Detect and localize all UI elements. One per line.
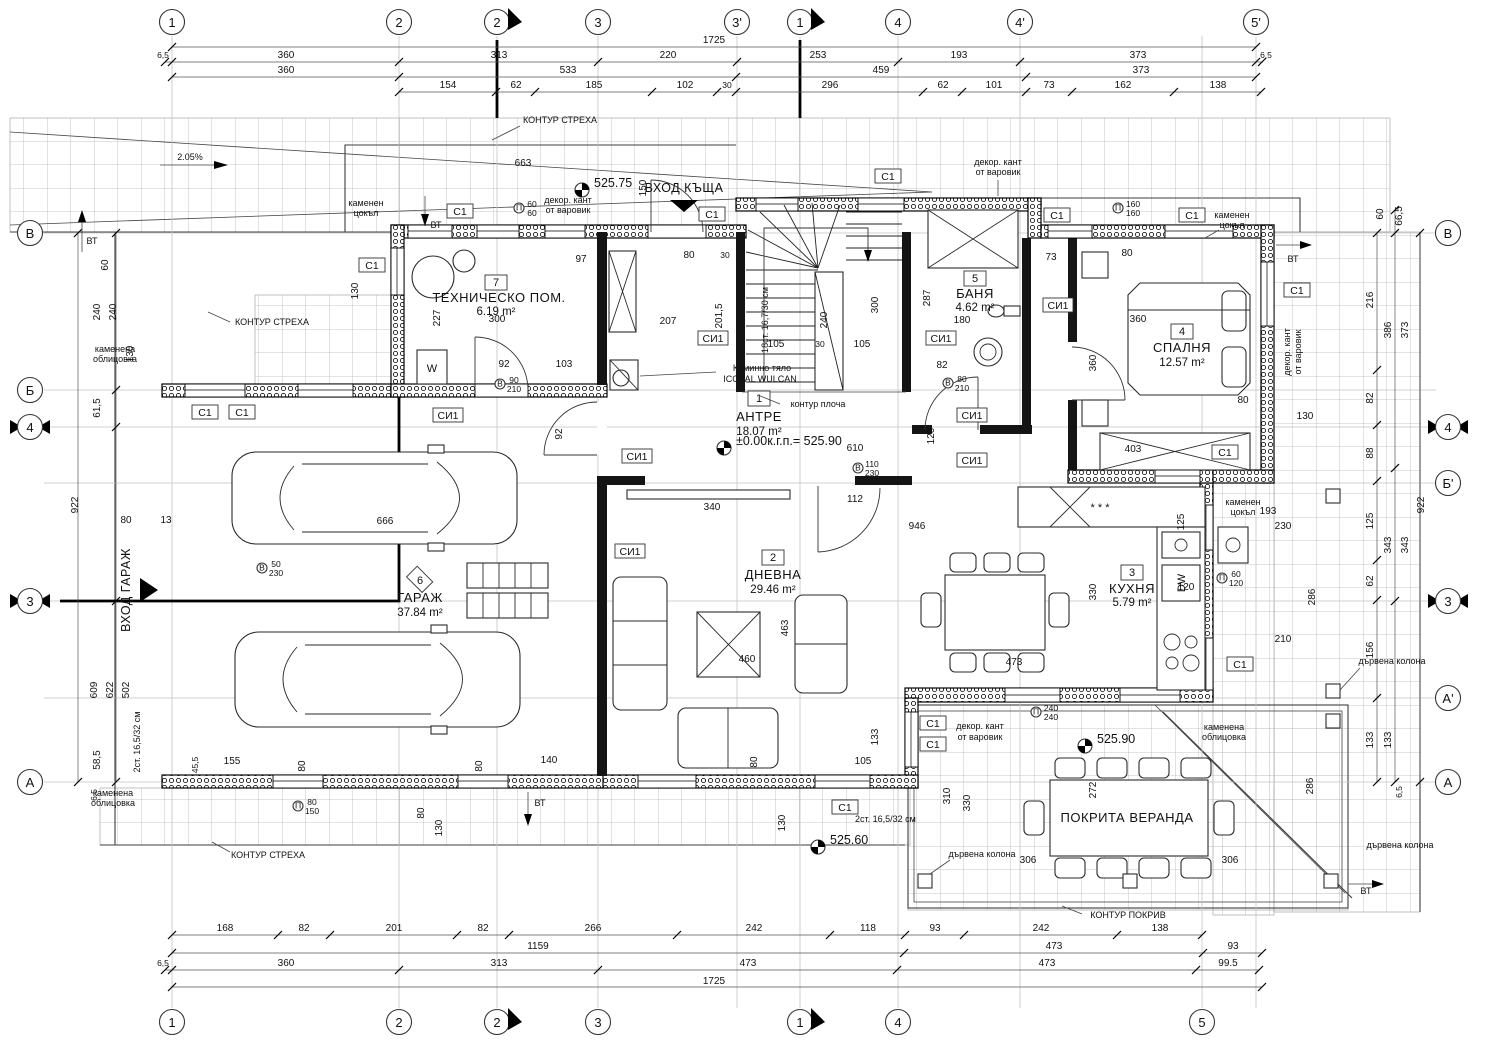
vent-label: ВТ bbox=[1361, 886, 1372, 896]
grid-bubble-right: А bbox=[1436, 770, 1461, 795]
chimney-label: ICOPAL WULCAN bbox=[723, 374, 797, 384]
grid-bubble-right: 3 bbox=[1428, 589, 1468, 614]
door-tag-text: СИ1 bbox=[962, 455, 983, 467]
room-number: 5 bbox=[972, 273, 978, 285]
room-area: 6.19 m² bbox=[477, 306, 516, 318]
wooden-column-label: дървена колона bbox=[948, 849, 1015, 859]
marker-letter: П bbox=[1115, 203, 1121, 213]
dim-label: 125 bbox=[1365, 512, 1376, 529]
dim-label: 622 bbox=[105, 681, 116, 698]
dim-label: 99.5 bbox=[1218, 958, 1238, 969]
dim-label: 80 bbox=[1237, 395, 1249, 406]
dim-label: 227 bbox=[432, 309, 443, 326]
shower bbox=[928, 210, 1018, 268]
room-number: 1 bbox=[756, 393, 762, 405]
dim-label: 330 bbox=[1088, 583, 1099, 600]
door-tag: СИ1 bbox=[433, 408, 463, 422]
dim-label: 313 bbox=[491, 958, 508, 969]
window bbox=[858, 198, 904, 211]
dim-label: 120 bbox=[926, 427, 937, 444]
roof-contour-label: КОНТУР ПОКРИВ bbox=[1090, 910, 1166, 920]
marker-letter: В bbox=[259, 563, 265, 573]
vent-label: ВТ bbox=[431, 220, 442, 230]
dim-label: 80 bbox=[1121, 248, 1133, 259]
window-tag-text: С1 bbox=[453, 206, 467, 218]
window-tag: С1 bbox=[699, 207, 725, 221]
room-area: 12.57 m² bbox=[1159, 357, 1205, 369]
tv-console bbox=[627, 490, 790, 499]
dim-label: 97 bbox=[575, 254, 587, 265]
grid-label: 1 bbox=[796, 1015, 803, 1030]
window bbox=[638, 775, 696, 788]
dim-label: 62 bbox=[510, 80, 522, 91]
dim-label: 80 bbox=[120, 515, 132, 526]
room-name-veranda: ПОКРИТА ВЕРАНДА bbox=[1060, 810, 1193, 825]
dim-label: 386 bbox=[1383, 321, 1394, 338]
bathroom-sink bbox=[974, 338, 1002, 366]
dim-label: 473 bbox=[740, 958, 757, 969]
dim-label: 66,5 bbox=[1394, 206, 1405, 226]
dim-label: 296 bbox=[822, 80, 839, 91]
grid-bubble-top: 5' bbox=[1244, 10, 1269, 35]
grid-label: 5' bbox=[1251, 15, 1261, 30]
dim-label: 80 bbox=[749, 756, 760, 768]
grid-label: 2 bbox=[493, 15, 500, 30]
window-tag: С1 bbox=[920, 737, 946, 751]
room-name: ТЕХНИЧЕСКО ПОМ. bbox=[432, 290, 565, 305]
grid-bubble-right: Б' bbox=[1436, 471, 1461, 496]
dim-label: 272 bbox=[1088, 781, 1099, 798]
door-tag: СИ1 bbox=[1043, 298, 1073, 312]
eave-contour-label: КОНТУР СТРЕХА bbox=[235, 317, 309, 327]
dim-label: 306 bbox=[1222, 855, 1239, 866]
dim-label: 118 bbox=[860, 923, 876, 934]
window bbox=[1261, 262, 1274, 326]
window-tag: С1 bbox=[1227, 657, 1253, 671]
window-tag-text: С1 bbox=[198, 407, 212, 419]
dim-label: 82 bbox=[1365, 392, 1376, 404]
door-gap bbox=[597, 402, 607, 455]
grid-bubble-right: В bbox=[1436, 221, 1461, 246]
dim-label: 220 bbox=[660, 50, 677, 61]
dim-label: 82 bbox=[477, 923, 489, 934]
room-number: 2 bbox=[770, 552, 776, 564]
grid-bubble-left: В bbox=[18, 221, 43, 246]
window bbox=[1005, 688, 1060, 702]
stone-plinth-label: каменен bbox=[1225, 497, 1260, 507]
slab-contour-note: контур плоча bbox=[791, 399, 846, 409]
dim-label: 306 bbox=[1020, 855, 1037, 866]
dim-label: 133 bbox=[870, 728, 881, 745]
dim-label: 103 bbox=[556, 359, 573, 370]
dim-label: 207 bbox=[660, 316, 677, 327]
dim-label: 185 bbox=[586, 80, 603, 91]
door-tag: СИ1 bbox=[926, 331, 956, 345]
stone-cladding-label: облицовка bbox=[93, 354, 137, 364]
bottom-dimension-labels: 168 82 201 82 266 242 118 93 242 138 115… bbox=[157, 923, 1239, 987]
grid-bubble-left: Б bbox=[18, 378, 43, 403]
dim-label: 101 bbox=[986, 80, 1003, 91]
dim-label: 138 bbox=[1152, 923, 1169, 934]
window-tag-text: С1 bbox=[1233, 659, 1247, 671]
door-tag: СИ1 bbox=[957, 453, 987, 467]
dim-label: 6,5 bbox=[157, 958, 169, 968]
dim-label: 30 bbox=[722, 80, 732, 90]
window bbox=[1155, 470, 1200, 483]
grid-label: 2 bbox=[395, 15, 402, 30]
coffee-table bbox=[697, 612, 760, 677]
window-tag-text: С1 bbox=[365, 260, 379, 272]
limestone-trim-label: декор. кант bbox=[544, 195, 592, 205]
level-symbol bbox=[717, 441, 731, 455]
room-number: 3 bbox=[1129, 567, 1135, 579]
dim-label: 230 bbox=[1275, 521, 1292, 532]
room-name: КУХНЯ bbox=[1109, 581, 1155, 596]
grid-label: 3 bbox=[1444, 594, 1451, 609]
dim-label: 130 bbox=[434, 819, 445, 836]
vent-label: ВТ bbox=[535, 798, 546, 808]
dim-label: 300 bbox=[870, 296, 881, 313]
grid-bubble-left: 4 bbox=[10, 415, 50, 440]
dim-label: 201,5 bbox=[714, 303, 725, 328]
door-tag-text: СИ1 bbox=[703, 333, 724, 345]
window bbox=[545, 225, 585, 238]
grid-bubble-top: 1 bbox=[160, 10, 185, 35]
window bbox=[815, 775, 870, 788]
window-tag: С1 bbox=[229, 405, 255, 419]
window-tag-text: С1 bbox=[235, 407, 249, 419]
level-value-entry: 525.75 bbox=[594, 176, 632, 190]
window-tag-text: С1 bbox=[1290, 285, 1304, 297]
garage-entrance-arrow bbox=[140, 578, 158, 602]
floor-plan-canvas: W DW * * * bbox=[0, 0, 1500, 1043]
dim-label: 6,5 bbox=[1394, 786, 1404, 798]
grid-label: Б' bbox=[1442, 476, 1453, 491]
dim-label: 360 bbox=[278, 65, 295, 76]
roof-slope-label: 2.05% bbox=[177, 152, 203, 162]
grid-label: В bbox=[1444, 226, 1453, 241]
window-tag: С1 bbox=[920, 716, 946, 730]
outdoor-sink bbox=[1218, 527, 1248, 563]
garage-car-1 bbox=[232, 445, 517, 551]
grid-bubble-bottom: 2 bbox=[485, 1008, 523, 1035]
room-number: 6 bbox=[417, 575, 423, 587]
dim-label: 62 bbox=[937, 80, 949, 91]
level-symbol bbox=[1078, 739, 1092, 753]
stone-cladding-label: каменена bbox=[95, 344, 135, 354]
limestone-trim-label: от варовик bbox=[976, 167, 1021, 177]
sofa-left bbox=[613, 577, 667, 710]
dim-label: 120 bbox=[1178, 582, 1195, 593]
limestone-trim-label: декор. кант bbox=[956, 721, 1004, 731]
dim-label: 45,5 bbox=[190, 756, 200, 773]
door-tag-text: СИ1 bbox=[620, 546, 641, 558]
grid-label: 3 bbox=[594, 15, 601, 30]
wooden-column-label: дървена колона bbox=[1366, 840, 1433, 850]
window-tag-text: С1 bbox=[926, 718, 940, 730]
grid-bubble-bottom: 1 bbox=[788, 1008, 826, 1035]
dim-label: 6,5 bbox=[1260, 50, 1272, 60]
window-tag-text: С1 bbox=[926, 739, 940, 751]
top-dimension-labels: 1725 6,5 360 313 220 253 193 373 6,5 360… bbox=[157, 35, 1272, 91]
dim-label: 58,5 bbox=[92, 750, 103, 770]
marker-height: 230 bbox=[865, 468, 879, 478]
dim-label: 130 bbox=[1297, 411, 1314, 422]
chimney-label: Коминно тяло bbox=[733, 363, 791, 373]
dim-label: 373 bbox=[1400, 321, 1411, 338]
door-tag-text: СИ1 bbox=[962, 410, 983, 422]
dim-label: 310 bbox=[942, 787, 953, 804]
door-tag-text: СИ1 bbox=[438, 410, 459, 422]
grid-label: 5 bbox=[1198, 1015, 1205, 1030]
dim-label: 112 bbox=[847, 494, 863, 505]
dim-label: 82 bbox=[936, 360, 948, 371]
dim-label: 30 bbox=[815, 339, 825, 349]
dim-label: 287 bbox=[922, 289, 933, 306]
grid-label: А bbox=[26, 775, 35, 790]
grid-bubble-top: 2 bbox=[485, 8, 523, 35]
stone-plinth-label: цокъл bbox=[354, 208, 379, 218]
dim-label: 30 bbox=[720, 250, 730, 260]
garage-entrance-label: ВХОД ГАРАЖ bbox=[119, 548, 133, 632]
stone-cladding-label: облицовка bbox=[1202, 732, 1246, 742]
dim-label: 1725 bbox=[703, 35, 726, 46]
grid-bubble-top: 3 bbox=[586, 10, 611, 35]
dim-label: 60 bbox=[100, 259, 111, 271]
level-value-veranda: 525.90 bbox=[1097, 732, 1135, 746]
window-tag-text: С1 bbox=[1050, 210, 1064, 222]
dim-label: 125 bbox=[1176, 513, 1187, 530]
dim-label: 1159 bbox=[527, 941, 549, 952]
marker-letter: В bbox=[497, 379, 503, 389]
exterior-steps-note: 2ст. 16,5/32 см bbox=[132, 712, 142, 773]
dim-label: 193 bbox=[951, 50, 968, 61]
dim-label: 240 bbox=[92, 303, 103, 320]
dim-label: 533 bbox=[560, 65, 577, 76]
grid-bubble-left: А bbox=[18, 770, 43, 795]
door-tag: СИ1 bbox=[957, 408, 987, 422]
dim-label: 92 bbox=[498, 359, 510, 370]
room-area: 29.46 m² bbox=[750, 584, 796, 596]
stone-cladding-label: каменена bbox=[1204, 722, 1244, 732]
dim-label: 80 bbox=[474, 760, 485, 772]
window-tag: С1 bbox=[1179, 208, 1205, 222]
dim-label: 88 bbox=[1365, 447, 1376, 459]
sofa-right bbox=[795, 595, 847, 693]
dim-label: 61,5 bbox=[92, 398, 103, 418]
dim-label: 473 bbox=[1046, 941, 1063, 952]
level-symbol bbox=[811, 840, 825, 854]
grid-label: А' bbox=[1442, 691, 1453, 706]
marker-letter: П bbox=[516, 203, 522, 213]
dim-label: 133 bbox=[1365, 731, 1376, 748]
dim-label: 340 bbox=[704, 502, 721, 513]
dim-label: 473 bbox=[1006, 657, 1023, 668]
hall-closet bbox=[609, 251, 636, 332]
dim-label: 80 bbox=[683, 250, 695, 261]
limestone-trim-label: декор. кант bbox=[974, 157, 1022, 167]
dim-label: 105 bbox=[855, 756, 872, 767]
window-tag-text: С1 bbox=[881, 171, 895, 183]
room-area: 4.62 m² bbox=[956, 302, 995, 314]
grid-bubble-top: 1 bbox=[788, 8, 826, 35]
dim-label: 201 bbox=[386, 923, 403, 934]
dim-label: 360 bbox=[278, 958, 295, 969]
stone-plinth-label: каменен bbox=[1214, 210, 1249, 220]
dim-label: 93 bbox=[929, 923, 941, 934]
window-tag-text: С1 bbox=[1185, 210, 1199, 222]
window bbox=[1048, 225, 1092, 238]
house-entrance-label: ВХОД КЪЩА bbox=[645, 181, 724, 195]
grid-label: 3 bbox=[594, 1015, 601, 1030]
dim-label: 360 bbox=[1088, 354, 1099, 371]
grid-bubble-bottom: 5 bbox=[1190, 1010, 1215, 1035]
door-tag-text: СИ1 bbox=[1048, 300, 1069, 312]
stone-plinth-label: цокъл bbox=[1231, 507, 1256, 517]
exterior-steps-note: 2ст. 16,5/32 см bbox=[855, 814, 916, 824]
dim-label: 343 bbox=[1400, 536, 1411, 553]
dim-label: 473 bbox=[1039, 958, 1056, 969]
grid-bubble-left: 3 bbox=[10, 589, 50, 614]
dim-label: 373 bbox=[1133, 65, 1150, 76]
level-value-terrace: 525.60 bbox=[830, 833, 868, 847]
door-tag-text: СИ1 bbox=[627, 451, 648, 463]
chimney-body bbox=[610, 360, 638, 390]
dim-label: 286 bbox=[1307, 588, 1318, 605]
dim-label: 105 bbox=[768, 339, 785, 350]
dim-label: 403 bbox=[1125, 444, 1142, 455]
grid-bubble-bottom: 1 bbox=[160, 1010, 185, 1035]
room-name: СПАЛНЯ bbox=[1153, 340, 1211, 355]
eave-contour-label: КОНТУР СТРЕХА bbox=[231, 850, 305, 860]
dim-label: 155 bbox=[224, 756, 241, 767]
dim-label: 73 bbox=[1045, 252, 1057, 263]
grid-label: 1 bbox=[168, 15, 175, 30]
stone-plinth-label: цокъл bbox=[1220, 220, 1245, 230]
marker-letter: П bbox=[295, 801, 301, 811]
grid-label: 1 bbox=[168, 1015, 175, 1030]
window-tag-text: С1 bbox=[838, 802, 852, 814]
grid-bubble-top: 2 bbox=[387, 10, 412, 35]
dim-label: 130 bbox=[350, 282, 361, 299]
dim-label: 502 bbox=[121, 681, 132, 698]
dim-label: 133 bbox=[1383, 731, 1394, 748]
limestone-trim-label: от варовик bbox=[546, 205, 591, 215]
dim-label: 13 bbox=[160, 515, 172, 526]
door-tag-text: СИ1 bbox=[931, 333, 952, 345]
window bbox=[905, 712, 918, 767]
dim-label: 946 bbox=[909, 521, 926, 532]
window-tag: С1 bbox=[359, 258, 385, 272]
dim-label: 73 bbox=[1043, 80, 1055, 91]
dim-label: 343 bbox=[1383, 536, 1394, 553]
room-number: 4 bbox=[1179, 326, 1185, 338]
grid-label: 3' bbox=[732, 15, 742, 30]
window bbox=[298, 384, 353, 397]
entry-door-gap bbox=[648, 225, 706, 238]
vent-label: ВТ bbox=[1288, 254, 1299, 264]
washer-label: W bbox=[427, 363, 438, 375]
grid-bubble-top: 4 bbox=[886, 10, 911, 35]
room-name: ГАРАЖ bbox=[397, 590, 443, 605]
dim-label: 242 bbox=[746, 923, 763, 934]
marker-height: 160 bbox=[1126, 208, 1140, 218]
marker-height: 210 bbox=[507, 384, 521, 394]
window bbox=[458, 775, 508, 788]
window-tag: С1 bbox=[192, 405, 218, 419]
dim-label: 240 bbox=[819, 311, 830, 328]
dim-label: 373 bbox=[1130, 50, 1147, 61]
dim-label: 360 bbox=[1130, 314, 1147, 325]
dim-label: 922 bbox=[1416, 496, 1427, 513]
grid-label: В bbox=[26, 226, 35, 241]
door-tag: СИ1 bbox=[622, 449, 652, 463]
dim-label: 168 bbox=[217, 923, 234, 934]
limestone-trim-label: декор. кант bbox=[1282, 328, 1292, 376]
dim-label: 266 bbox=[585, 923, 602, 934]
dim-label: 313 bbox=[491, 50, 508, 61]
freezer-stars: * * * bbox=[1091, 502, 1111, 514]
stair-count-note: 18ст. 16,7/30 см bbox=[760, 287, 770, 353]
dim-label: 180 bbox=[954, 315, 971, 326]
dim-label: 93 bbox=[1227, 941, 1239, 952]
grid-label: А bbox=[1444, 775, 1453, 790]
eave-contour-label: КОНТУР СТРЕХА bbox=[523, 115, 597, 125]
door-tag: СИ1 bbox=[615, 544, 645, 558]
grid-label: 1 bbox=[796, 15, 803, 30]
dim-label: 922 bbox=[70, 496, 81, 513]
dim-label: 286 bbox=[1305, 777, 1316, 794]
dim-label: 80 bbox=[297, 760, 308, 772]
nightstand bbox=[1082, 252, 1108, 278]
grid-bubble-right: А' bbox=[1436, 686, 1461, 711]
window-tag: С1 bbox=[447, 204, 473, 218]
grid-bubble-bottom: 4 bbox=[886, 1010, 911, 1035]
grid-label: 2 bbox=[493, 1015, 500, 1030]
dim-label: 459 bbox=[873, 65, 890, 76]
sofa-bottom bbox=[678, 708, 778, 768]
dim-label: 92 bbox=[554, 428, 565, 440]
grid-label: 4 bbox=[894, 15, 901, 30]
floor-plan-page: W DW * * * bbox=[0, 0, 1500, 1043]
dim-label: 62 bbox=[1365, 575, 1376, 587]
window bbox=[756, 198, 798, 211]
level-value-floor: ±0.00к.г.п.= 525.90 bbox=[736, 434, 842, 448]
dim-label: 193 bbox=[1260, 506, 1277, 517]
vent-label: ВТ bbox=[87, 236, 98, 246]
window-tag: С1 bbox=[1044, 208, 1070, 222]
marker-height: 210 bbox=[955, 383, 969, 393]
dim-label: 666 bbox=[377, 516, 394, 527]
window-tag: С1 bbox=[875, 169, 901, 183]
dim-label: 162 bbox=[1115, 80, 1132, 91]
garage-car-2 bbox=[235, 625, 520, 734]
grid-label: Б bbox=[26, 383, 35, 398]
room-area: 5.79 m² bbox=[1113, 597, 1152, 609]
dim-label: 138 bbox=[1210, 80, 1227, 91]
dim-label: 130 bbox=[777, 814, 788, 831]
grid-bubble-top: 4' bbox=[1008, 10, 1033, 35]
room-number: 7 bbox=[493, 277, 499, 289]
dim-label: 80 bbox=[416, 807, 427, 819]
dim-label: 140 bbox=[541, 755, 558, 766]
grid-bubble-bottom: 2 bbox=[387, 1010, 412, 1035]
dim-label: 242 bbox=[1033, 923, 1050, 934]
dim-label: 360 bbox=[278, 50, 295, 61]
stone-cladding-label: каменена bbox=[93, 788, 133, 798]
grid-label: 4 bbox=[26, 420, 33, 435]
dim-label: 460 bbox=[739, 654, 756, 665]
